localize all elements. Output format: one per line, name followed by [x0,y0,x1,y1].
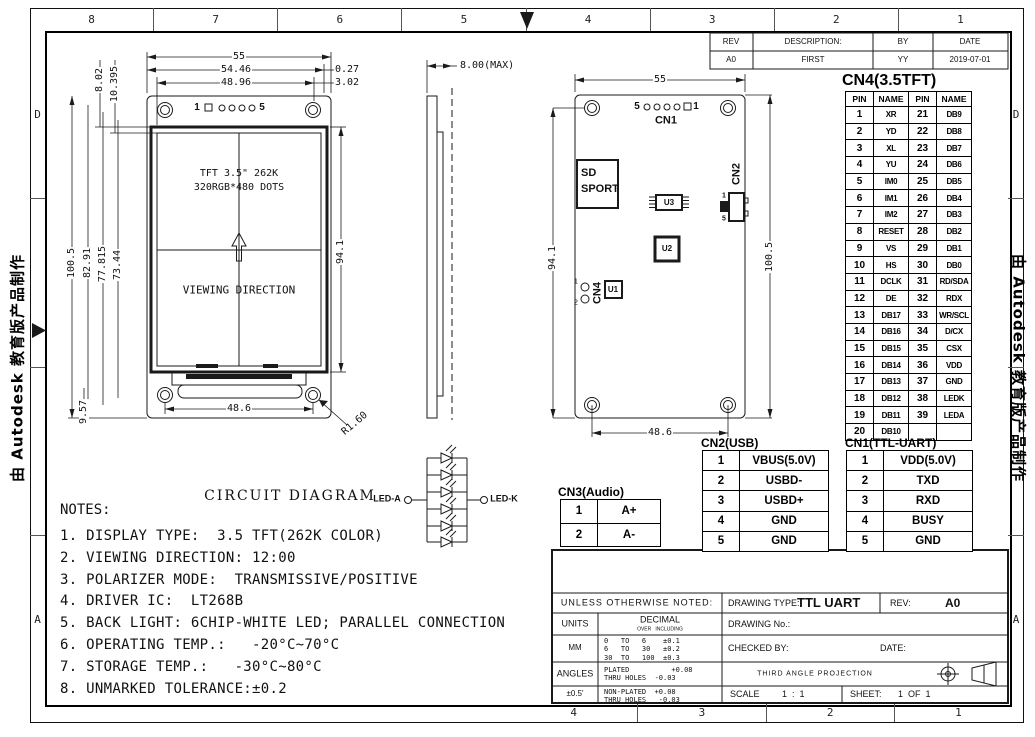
cn4-pin-name [937,424,972,441]
cn4-pin-number: 15 [846,340,874,357]
cn4-pin-name: DB0 [937,257,972,274]
checked-by-label: CHECKED BY: [728,644,789,653]
cn2-pin-number: 1 [703,451,740,471]
cn4-table-row: 18 DB12 38 LEDK [846,390,972,407]
display-resolution-text: 320RGB*480 DOTS [194,183,284,193]
fold-arrow-top [520,12,534,29]
cn1-pin-name: TXD [884,471,973,491]
cn1-pin-number: 3 [847,491,884,511]
cn4-pin-name: IM1 [874,190,909,207]
cn4-table-row: 2 YD 22 DB8 [846,123,972,140]
decimal-sub-label: OVER INCLUDING [637,628,683,633]
cn4-pin-name: WR/SCL [937,307,972,324]
cn2-pin-name: GND [740,511,829,531]
cn4-pin-number: 11 [846,273,874,290]
viewing-direction-label: VIEWING DIRECTION [183,285,296,296]
cn4-pin2-label: 2 [574,300,578,307]
cn4-pin-name: CSX [937,340,972,357]
rev-date-value: 2019-07-01 [950,56,991,64]
cn4-pin-name: DB11 [874,407,909,424]
cn3-table-title: CN3(Audio) [558,485,624,499]
drawing-type-value: TTL UART [797,596,860,609]
third-angle-projection-symbol [937,662,996,686]
cn4-pin-name: DB17 [874,307,909,324]
cn1-table-row: 5 GND [847,531,973,551]
cn4-pin-name: YD [874,123,909,140]
rev-description-value: FIRST [801,56,824,64]
cn4-table: PINNAMEPINNAME 1 XR 21 DB9 2 YD 22 DB8 3… [845,91,972,441]
cn1-pin-number: 2 [847,471,884,491]
rev-header-by: BY [898,38,909,46]
dim-back-hole-span: 48.6 [647,428,673,438]
cn4-pin-number: 28 [909,223,937,240]
back-view-linework [575,95,748,418]
cn4-pin-number: 24 [909,157,937,174]
dim-height-4: 73.44 [113,249,123,281]
note-item: 7. STORAGE TEMP.: -30°C~80°C [60,657,560,679]
cn2-table-row: 1 VBUS(5.0V) [703,451,829,471]
cn4-pin-number: 17 [846,374,874,391]
cn1-table-row: 2 TXD [847,471,973,491]
cn1-table-row: 1 VDD(5.0V) [847,451,973,471]
side-view-linework [427,88,452,420]
cn4-pin-name: DB9 [937,107,972,124]
dim-overall-width: 55 [232,52,246,62]
cn4-pin-number: 10 [846,257,874,274]
cn4-pin-name: DB1 [937,240,972,257]
cn4-pin-name: DB14 [874,357,909,374]
cn4-pin-name: RD/SDA [937,273,972,290]
cn1-pin-number: 4 [847,511,884,531]
cn2-table-row: 3 USBD+ [703,491,829,511]
sheet-value: 1 OF 1 [898,690,931,699]
cn4-pin-number: 8 [846,223,874,240]
cn1-pin-name: VDD(5.0V) [884,451,973,471]
cn4-header-cell: NAME [874,92,909,107]
cn4-pin-name: DB2 [937,223,972,240]
cn4-table-row: 16 DB14 36 VDD [846,357,972,374]
cn2-pin-number: 5 [703,531,740,551]
cn1-connector-label: CN1 [655,116,677,127]
cn3-pin-name: A+ [598,500,661,524]
cn4-table-row: 7 IM2 27 DB3 [846,207,972,224]
tolerance-line: 30 TO 100 ±0.3 [604,654,680,662]
cn2-pin-name: USBD+ [740,491,829,511]
rev-header-description: DESCRIPTION: [785,38,842,46]
cn4-pin-name: DE [874,290,909,307]
display-type-text: TFT 3.5" 262K [200,169,278,179]
cn4-pin-number: 3 [846,140,874,157]
cn2-pin-name: GND [740,531,829,551]
cn3-pin-number: 2 [561,523,598,547]
u2-ic-label: U2 [662,245,672,253]
cn4-pin-number: 32 [909,290,937,307]
fold-arrow-left [32,323,46,338]
cn4-header-cell: PIN [909,92,937,107]
dim-back-right-height: 100.5 [765,241,775,273]
cn4-pin1-label: 1 [574,279,578,286]
projection-label: THIRD ANGLE PROJECTION [757,671,873,678]
cn4-pin-number: 31 [909,273,937,290]
led-cathode-label: LED-K [490,495,518,504]
note-item: 4. DRIVER IC: LT268B [60,591,560,613]
dim-width-2: 54.46 [220,65,252,75]
cn2-pin-name: VBUS(5.0V) [740,451,829,471]
cn4-pin-number: 36 [909,357,937,374]
plated-line: PLATED +0.08 [604,666,693,674]
sheet-label: SHEET: [850,690,882,699]
cn1-table-row: 4 BUSY [847,511,973,531]
cn4-table-row: 1 XR 21 DB9 [846,107,972,124]
cn4-table-row: 5 IM0 25 DB5 [846,173,972,190]
cn4-pin-name: IM2 [874,207,909,224]
cn4-pin-number: 1 [846,107,874,124]
u1-ic-label: U1 [608,286,618,294]
cn4-pin-name: DB8 [937,123,972,140]
dim-active-width: 48.96 [220,78,252,88]
plated-tolerance: PLATED +0.08THRU HOLES -0.03 [604,666,693,683]
cn4-pin-name: DB4 [937,190,972,207]
rev-value-titleblock: A0 [945,597,960,609]
cn4-pin-number: 2 [846,123,874,140]
u3-ic-label: U3 [664,199,674,207]
angle-tolerance-value: ±0.5' [566,690,583,698]
cn4-pin-name: RESET [874,223,909,240]
note-item: 2. VIEWING DIRECTION: 12:00 [60,548,560,570]
cn4-pin-name: DB7 [937,140,972,157]
cn4-pin-number: 30 [909,257,937,274]
drawing-sheet: 87654321 4321 DA DA 由 Autodesk 教育版产品制作 由… [0,0,1035,737]
cn3-table-row: 1 A+ [561,500,661,524]
tolerance-list: 0 TO 6 ±0.16 TO 30 ±0.230 TO 100 ±0.3 [604,637,680,662]
cn4-pin-number: 4 [846,157,874,174]
cn1-table-title: CN1(TTL-UART) [845,436,936,450]
dim-front-right-height: 94.1 [336,239,346,265]
cn4-pin-name: LEDK [937,390,972,407]
dim-offset-2: 3.02 [334,78,360,88]
cn1-table-row: 3 RXD [847,491,973,511]
cn1-table: 1 VDD(5.0V) 2 TXD 3 RXD 4 BUSY 5 GND [846,450,973,552]
nonplated-line: THRU HOLES -0.03 [604,696,680,704]
units-label: UNITS [562,620,589,629]
cn4-pin-number: 12 [846,290,874,307]
cn4-table-row: 14 DB16 34 D/CX [846,323,972,340]
cn4-pin-number: 6 [846,190,874,207]
cn4-pin-number: 35 [909,340,937,357]
cn4-table-row: 6 IM1 26 DB4 [846,190,972,207]
cn4-pin-number: 7 [846,207,874,224]
cn4-header-row: PINNAMEPINNAME [846,92,972,107]
dim-thickness: 8.00(MAX) [459,61,515,71]
dim-height-2: 82.91 [83,247,93,279]
cn4-table-title: CN4(3.5TFT) [842,72,936,90]
front-pin1-label: 1 [194,103,200,113]
cn4-pin-number: 26 [909,190,937,207]
cn4-table-row: 13 DB17 33 WR/SCL [846,307,972,324]
cn4-pin-number: 14 [846,323,874,340]
scale-label: SCALE [730,690,760,699]
dim-overall-height: 100.5 [67,247,77,279]
cn4-pin-name: DCLK [874,273,909,290]
cn4-pin-name: DB6 [937,157,972,174]
cn4-table-row: 8 RESET 28 DB2 [846,223,972,240]
cn4-pin-name: DB13 [874,374,909,391]
cn4-pin-number: 5 [846,173,874,190]
cn4-table-row: 15 DB15 35 CSX [846,340,972,357]
note-item: 1. DISPLAY TYPE: 3.5 TFT(262K COLOR) [60,526,560,548]
rev-value: A0 [726,56,736,64]
cn4-connector-label: CN4 [593,282,604,304]
cn4-pin-name: XR [874,107,909,124]
note-item: 5. BACK LIGHT: 6CHIP-WHITE LED; PARALLEL… [60,613,560,635]
cn4-pin-name: DB12 [874,390,909,407]
dim-height-3: 77.815 [98,245,108,283]
cn2-pin-number: 2 [703,471,740,491]
back-dimensions [551,74,773,437]
note-item: 6. OPERATING TEMP.: -20°C~70°C [60,635,560,657]
cn4-pin-number: 33 [909,307,937,324]
unless-noted-label: UNLESS OTHERWISE NOTED: [561,599,713,608]
cn2-pin1-label: 1 [722,193,726,200]
cn4-pin-number: 22 [909,123,937,140]
cn4-pin-name: DB15 [874,340,909,357]
cn4-pin-number: 38 [909,390,937,407]
tolerance-line: 6 TO 30 ±0.2 [604,645,680,653]
rev-header-rev: REV [723,38,739,46]
cn4-pin-number: 9 [846,240,874,257]
angles-label: ANGLES [557,670,594,679]
cn4-pin-number: 19 [846,407,874,424]
cn4-table-row: 12 DE 32 RDX [846,290,972,307]
notes-title: NOTES: [60,503,111,517]
cn2-connector-label: CN2 [732,163,743,185]
units-value: MM [568,644,581,652]
cn3-pin-number: 1 [561,500,598,524]
cn4-table-row: 19 DB11 39 LEDA [846,407,972,424]
cn1-pin-name: BUSY [884,511,973,531]
cn4-pin-name: XL [874,140,909,157]
front-dimensions [68,52,347,425]
nonplated-tolerance: NON-PLATED +0.08THRU HOLES -0.03 [604,688,680,705]
cn4-pin-number: 29 [909,240,937,257]
cn4-table-row: 11 DCLK 31 RD/SDA [846,273,972,290]
cn2-pin5-label: 5 [722,216,726,223]
cn4-pin-number: 25 [909,173,937,190]
rev-label: REV: [890,599,911,608]
cn4-header-cell: NAME [937,92,972,107]
dim-top-margin-2: 10.395 [110,65,120,103]
cn2-table-row: 2 USBD- [703,471,829,491]
cn4-pin-number: 27 [909,207,937,224]
cn4-pin-name: HS [874,257,909,274]
cn4-pin-name: DB5 [937,173,972,190]
cn4-pin-number: 16 [846,357,874,374]
drawing-type-label: DRAWING TYPE: [728,599,800,608]
sd-slot-label-line1: SD [581,168,596,179]
dim-front-hole-span: 48.6 [226,404,252,414]
cn3-table-row: 2 A- [561,523,661,547]
cn4-pin-number: 39 [909,407,937,424]
cn4-pin-number: 21 [909,107,937,124]
circuit-diagram-title: CIRCUIT DIAGRAM [204,489,376,503]
dim-offset-1: 0.27 [334,65,360,75]
cn2-pin-number: 4 [703,511,740,531]
cn4-pin-name: YU [874,157,909,174]
notes-list: 1. DISPLAY TYPE: 3.5 TFT(262K COLOR)2. V… [60,526,560,700]
scale-value: 1 : 1 [782,690,805,699]
cn2-table-row: 5 GND [703,531,829,551]
cn4-pin-number: 23 [909,140,937,157]
cn4-pin-name: VDD [937,357,972,374]
plated-line: THRU HOLES -0.03 [604,674,693,682]
cn2-pin-name: USBD- [740,471,829,491]
cn4-pin-name: LEDA [937,407,972,424]
cn4-pin-number: 18 [846,390,874,407]
cn2-pin-number: 3 [703,491,740,511]
rev-header-date: DATE [960,38,981,46]
front-view-linework [147,96,331,418]
cn4-table-row: 3 XL 23 DB7 [846,140,972,157]
back-pin5-label: 5 [634,102,640,112]
dim-bottom-margin: 9.57 [79,399,89,425]
drawing-no-label: DRAWING No.: [728,620,790,629]
back-pin1-label: 1 [693,102,699,112]
tolerance-line: 0 TO 6 ±0.1 [604,637,680,645]
cn4-pin-name: GND [937,374,972,391]
note-item: 8. UNMARKED TOLERANCE:±0.2 [60,679,560,701]
cn4-table-row: 9 VS 29 DB1 [846,240,972,257]
dim-back-width: 55 [653,75,667,85]
cn1-pin-name: GND [884,531,973,551]
dim-top-margin-1: 8.02 [95,67,105,93]
front-pin5-label: 5 [259,103,265,113]
decimal-label: DECIMAL [640,616,680,625]
cn2-table: 1 VBUS(5.0V) 2 USBD- 3 USBD+ 4 GND 5 GND [702,450,829,552]
cn4-pin-number: 34 [909,323,937,340]
cn4-pin-name: DB16 [874,323,909,340]
rev-by-value: YY [898,56,909,64]
led-anode-label: LED-A [373,495,401,504]
cn4-pin-name: D/CX [937,323,972,340]
date-label: DATE: [880,644,906,653]
dim-back-left-height: 94.1 [548,245,558,271]
cn4-table-row: 10 HS 30 DB0 [846,257,972,274]
cn4-table-row: 17 DB13 37 GND [846,374,972,391]
cn2-table-title: CN2(USB) [701,436,758,450]
cn4-pin-number: 13 [846,307,874,324]
cn1-pin-number: 1 [847,451,884,471]
cn4-pin-name: DB3 [937,207,972,224]
cn1-pin-name: RXD [884,491,973,511]
cn4-pin-number: 37 [909,374,937,391]
cn2-table-row: 4 GND [703,511,829,531]
cn1-pin-number: 5 [847,531,884,551]
cn3-table: 1 A+ 2 A- [560,499,661,547]
cn3-pin-name: A- [598,523,661,547]
cn4-pin-name: RDX [937,290,972,307]
cn4-pin-name: IM0 [874,173,909,190]
nonplated-line: NON-PLATED +0.08 [604,688,680,696]
cn4-table-row: 4 YU 24 DB6 [846,157,972,174]
cn4-pin-name: VS [874,240,909,257]
cn4-header-cell: PIN [846,92,874,107]
sd-slot-label-line2: SPORT [581,184,619,195]
note-item: 3. POLARIZER MODE: TRANSMISSIVE/POSITIVE [60,570,560,592]
